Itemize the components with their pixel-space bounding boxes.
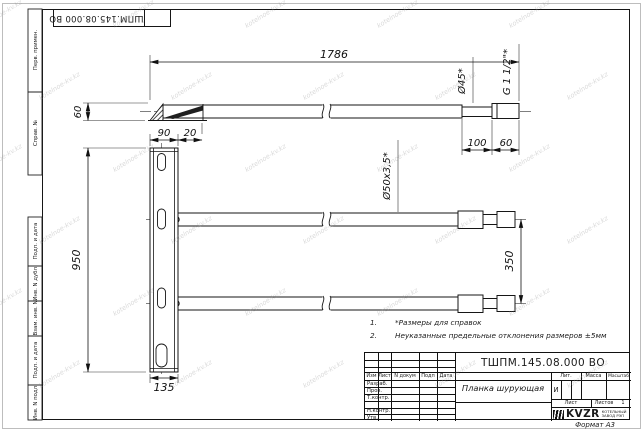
title-block: ТШПМ.145.08.000 ВО Планка шурующая Изм Л… xyxy=(364,352,630,420)
margin-label-vzam: Взам. инв. N xyxy=(33,300,39,335)
middle-tube xyxy=(173,211,515,229)
note-2: 2. Неуказанные предельные отклонения раз… xyxy=(370,331,620,340)
margin-label-sprav: Справ. № xyxy=(33,119,39,146)
logo-subtext: КОТЕЛЬНЫЙ ЗАВОД РЭП xyxy=(602,410,627,418)
col-izm: Изм xyxy=(365,372,378,380)
list-label: Лист xyxy=(551,399,591,407)
col-data: Дата xyxy=(437,372,455,380)
row-razrab: Разраб. xyxy=(367,380,393,387)
note-1-text: *Размеры для справок xyxy=(395,318,482,327)
dim-neck-dia: Ø45* xyxy=(456,68,468,95)
dim-end-len: 60 xyxy=(500,138,513,149)
row-prov: Пров. xyxy=(367,387,393,394)
dim-length: 1786 xyxy=(320,48,348,61)
dim-height: 950 xyxy=(70,250,83,271)
top-tube xyxy=(163,104,519,119)
lit-value: И xyxy=(551,380,561,399)
logo-subtext-line2: ЗАВОД РЭП xyxy=(602,414,627,418)
dim-top-width: 90 xyxy=(158,128,171,139)
margin-label-perv: Перв. примен. xyxy=(33,29,39,70)
listov-label: Листов xyxy=(591,399,617,407)
margin-label-podp1: Подп. и дата xyxy=(33,223,39,260)
titleblock-designation: ТШПМ.145.08.000 ВО xyxy=(456,353,630,372)
bottom-tube xyxy=(173,295,515,313)
note-1-number: 1. xyxy=(370,318,377,327)
col-list: Лист xyxy=(378,372,391,380)
margin-label-inv-dubl: Инв. N дубл. xyxy=(33,265,39,301)
logo-glyph-icon xyxy=(553,410,564,419)
note-2-text: Неуказанные предельные отклонения размер… xyxy=(395,331,607,340)
logo-name: KVZR xyxy=(566,408,600,420)
break-symbol-bottom xyxy=(322,296,331,312)
dim-neck-len: 100 xyxy=(467,138,486,149)
listov-value: 1 xyxy=(617,399,629,407)
plank xyxy=(150,148,178,372)
note-1: 1. *Размеры для справок xyxy=(370,318,620,327)
top-designation-text: ТШПМ.145.08.000 ВО xyxy=(49,13,149,23)
format-label: Формат А3 xyxy=(560,421,630,429)
col-doc: N докум xyxy=(391,372,419,380)
col-podp: Подп xyxy=(419,372,437,380)
massa-header: Масса xyxy=(581,372,606,380)
dim-thread: G 1 1/2"* xyxy=(502,49,513,95)
masshtab-header: Масштаб xyxy=(606,372,631,380)
part-name: Планка шурующая xyxy=(456,374,550,402)
dim-width: 135 xyxy=(154,381,175,394)
top-stamp-empty-cell xyxy=(144,9,171,27)
row-tkontr: Т.контр. xyxy=(367,394,393,401)
row-utv: Утв. xyxy=(367,414,393,421)
break-symbol-top xyxy=(322,104,331,120)
dim-tip: 20 xyxy=(184,128,197,139)
dim-tip-height: 60 xyxy=(73,106,84,119)
dim-pipe-spec: Ø50x3,5* xyxy=(381,152,393,200)
break-symbol-middle xyxy=(322,212,331,228)
dim-spacing: 350 xyxy=(503,251,516,272)
note-2-number: 2. xyxy=(370,331,377,340)
top-designation-stamp: ТШПМ.145.08.000 ВО xyxy=(53,9,145,27)
margin-label-inv-podl: Инв. N подл. xyxy=(33,384,39,420)
margin-label-podp2: Подп. и дата xyxy=(33,342,39,379)
lit-header: Лит. xyxy=(551,372,581,380)
margin-labels: Перв. примен. Справ. № Подп. и дата Инв.… xyxy=(33,29,39,419)
company-logo: KVZR КОТЕЛЬНЫЙ ЗАВОД РЭП xyxy=(553,408,629,420)
